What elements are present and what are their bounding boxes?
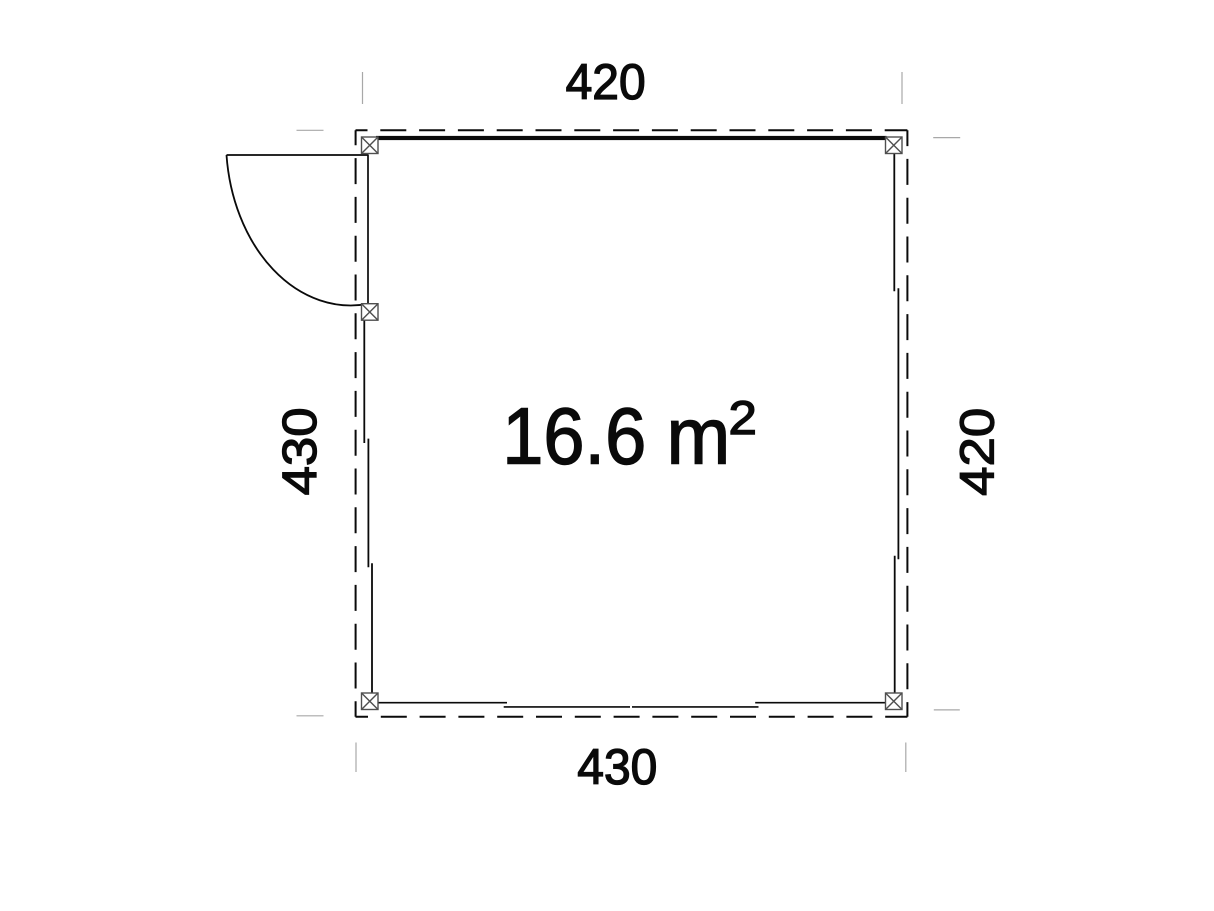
svg-text:420: 420 (566, 54, 646, 110)
svg-text:m: m (667, 391, 731, 481)
svg-text:420: 420 (950, 408, 1004, 496)
svg-text:2: 2 (729, 392, 757, 445)
svg-text:430: 430 (577, 739, 657, 795)
svg-text:16.6: 16.6 (502, 392, 646, 481)
svg-text:430: 430 (272, 407, 326, 495)
